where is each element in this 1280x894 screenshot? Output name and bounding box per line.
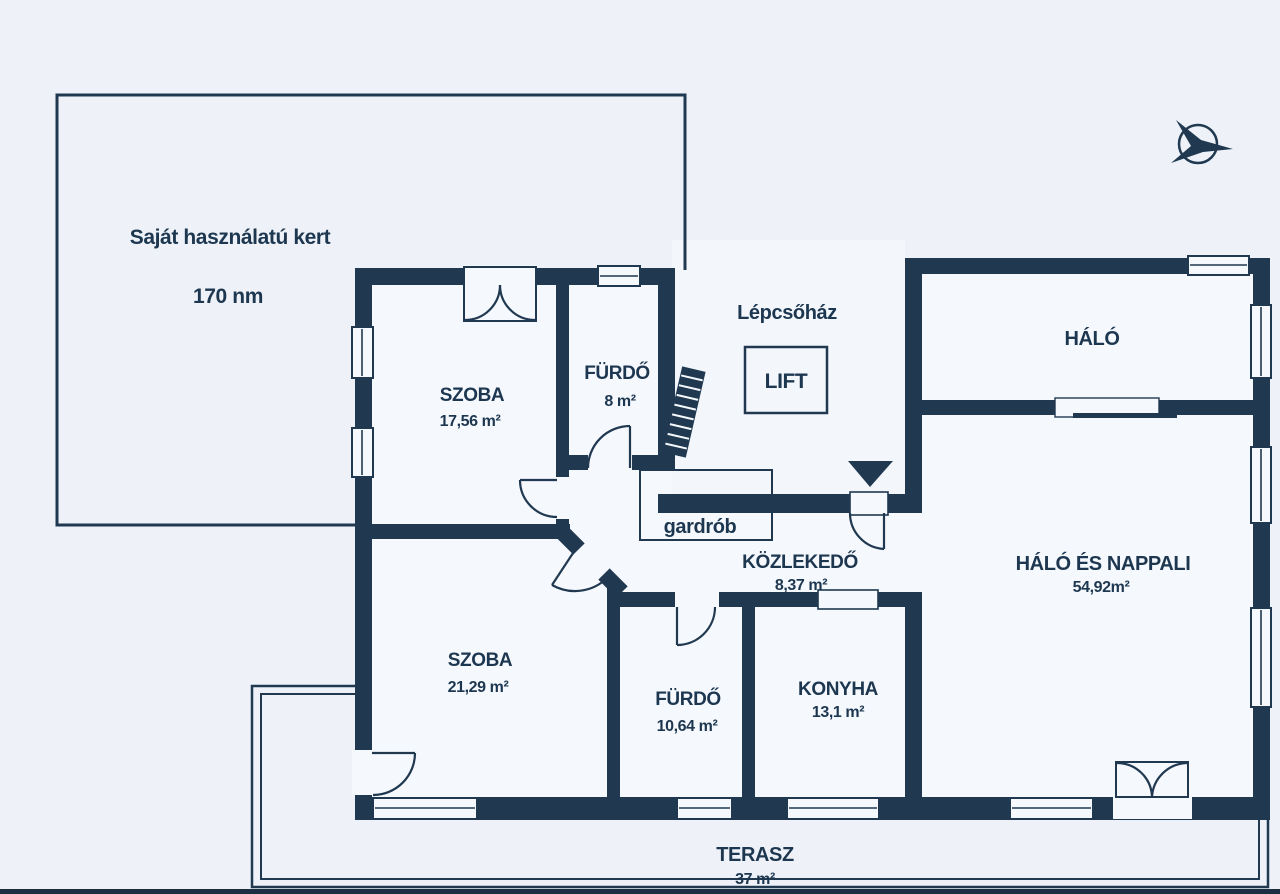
garden-label: Saját használatú kert: [130, 226, 331, 249]
window: [677, 798, 732, 819]
room-label-furdo-1: FÜRDŐ: [584, 362, 650, 384]
window: [1010, 798, 1093, 819]
window: [1251, 608, 1271, 707]
room-area-szoba-2: 21,29 m²: [448, 679, 509, 696]
room-area-szoba-1: 17,56 m²: [440, 413, 501, 430]
sliding-door: [1055, 398, 1177, 418]
staircase-label: Lépcsőház: [737, 302, 837, 324]
room-label-halo-nappali: HÁLÓ ÉS NAPPALI: [1016, 551, 1191, 575]
window: [373, 798, 477, 819]
window: [787, 798, 879, 819]
window: [352, 327, 373, 378]
garden-area-value: 170 nm: [193, 285, 263, 308]
room-label-kozlekedo: KÖZLEKEDŐ: [742, 551, 858, 573]
window: [1251, 447, 1271, 523]
room-label-halo: HÁLÓ: [1064, 326, 1119, 350]
room-area-furdo-2: 10,64 m²: [657, 718, 718, 735]
image-bottom-border: [0, 889, 1280, 894]
room-area-terasz: 37 m²: [735, 871, 775, 888]
window: [352, 428, 373, 477]
room-label-terasz: TERASZ: [716, 844, 794, 866]
room-area-kozlekedo: 8,37 m²: [775, 577, 827, 594]
window: [598, 266, 640, 286]
room-fill-west: [355, 268, 675, 820]
floorplan-page: Saját használatú kert 170 nm SZOBA 17,56…: [0, 0, 1280, 894]
room-label-furdo-2: FÜRDŐ: [655, 688, 721, 710]
room-area-konyha: 13,1 m²: [812, 704, 864, 721]
room-area-furdo-1: 8 m²: [604, 393, 635, 410]
floorplan-svg: Saját használatú kert 170 nm SZOBA 17,56…: [0, 0, 1280, 894]
room-label-szoba-1: SZOBA: [440, 385, 505, 406]
lift-label: LIFT: [765, 370, 808, 393]
room-label-szoba-2: SZOBA: [448, 650, 513, 671]
room-label-konyha: KONYHA: [798, 679, 879, 700]
window: [1188, 256, 1249, 275]
room-area-halo-nappali: 54,92m²: [1073, 579, 1130, 596]
window: [1251, 305, 1271, 378]
wardrobe-label: gardrób: [664, 516, 737, 538]
